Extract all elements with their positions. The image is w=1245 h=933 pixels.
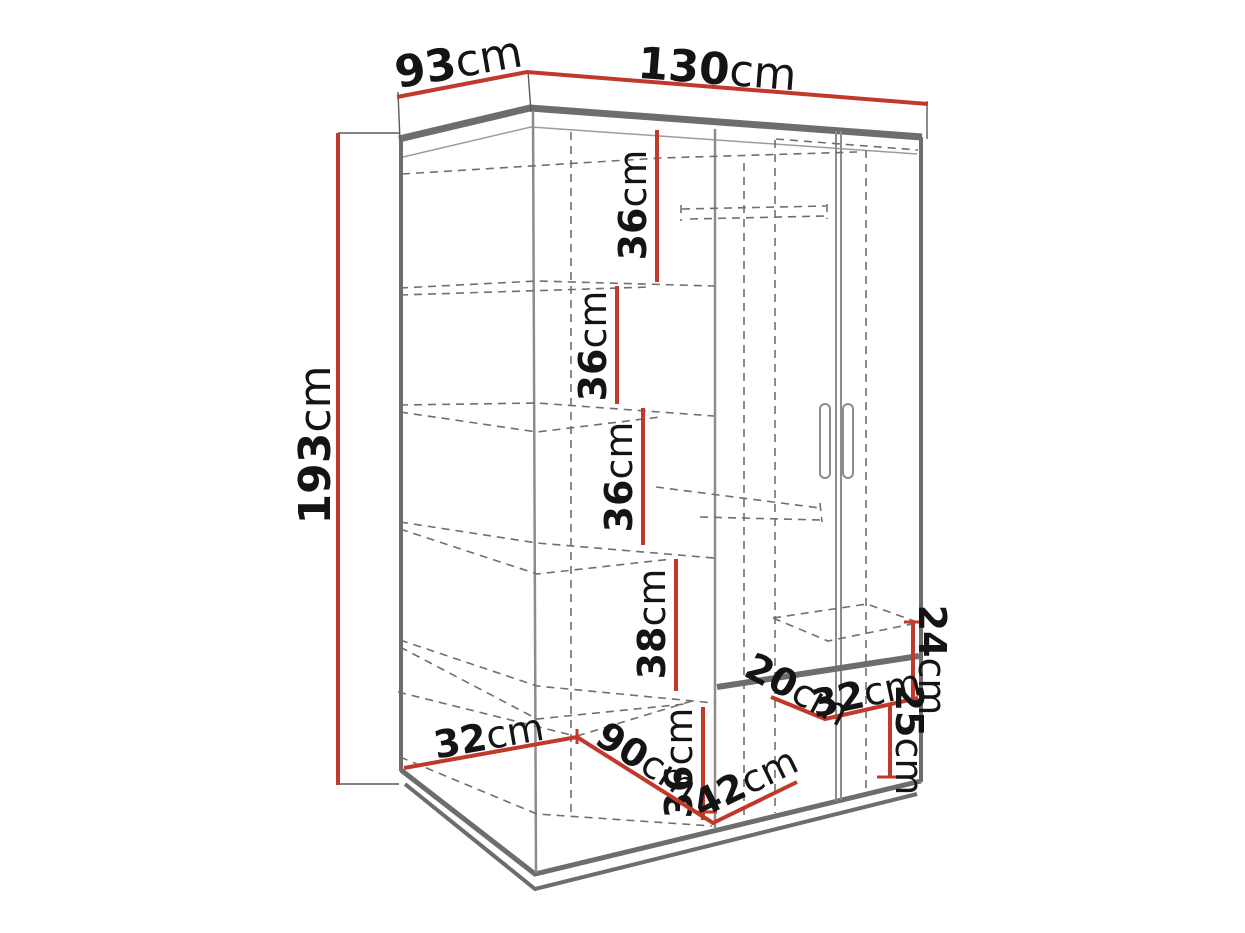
dim-top-width-group: 93cm 130cm	[391, 26, 928, 104]
front-corner-edge	[533, 112, 536, 873]
dim-label-right-25: 25cm	[887, 685, 931, 796]
dimension-annotations: 93cm 130cm 193cm 36cm 36cm 36cm 38cm 36c…	[290, 26, 954, 826]
diagram-canvas: 93cm 130cm 193cm 36cm 36cm 36cm 38cm 36c…	[0, 0, 1245, 933]
dim-shelf-spacing-group: 36cm 36cm 36cm 38cm 36cm	[571, 130, 703, 820]
dim-label-36-1: 36cm	[611, 150, 655, 261]
right-door-handle	[843, 404, 853, 478]
hanging-rail-top-dashed	[681, 204, 827, 221]
dim-label-width-130: 130cm	[636, 38, 798, 101]
dim-label-height-193: 193cm	[290, 366, 341, 525]
dim-label-38: 38cm	[630, 569, 674, 680]
dim-label-floor-32: 32cm	[430, 705, 547, 768]
dim-label-36-3: 36cm	[597, 422, 641, 533]
left-door-handle	[820, 404, 830, 478]
dim-height-group: 193cm	[290, 133, 341, 785]
bottom-right-shelf-dashed	[773, 604, 917, 641]
top-edge-band	[399, 108, 922, 139]
wardrobe-dimension-diagram: 93cm 130cm 193cm 36cm 36cm 36cm 38cm 36c…	[0, 0, 1245, 933]
dim-label-36-2: 36cm	[571, 291, 615, 402]
hanging-rail-middle-dashed	[656, 487, 822, 522]
dim-label-depth-93: 93cm	[391, 26, 526, 99]
